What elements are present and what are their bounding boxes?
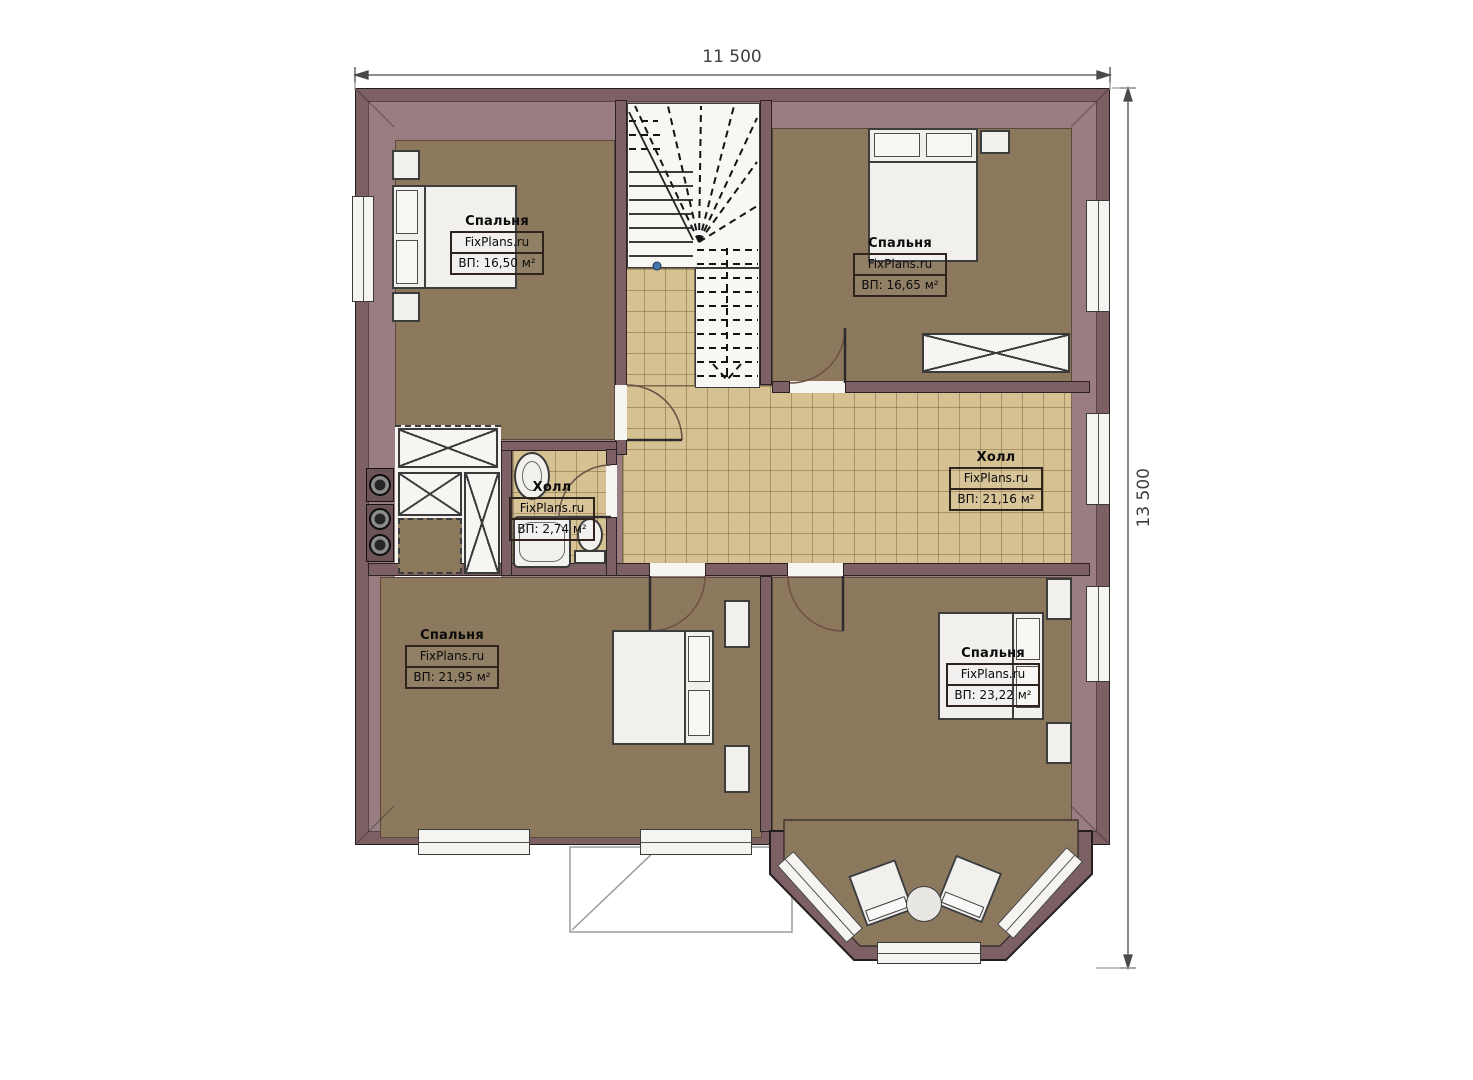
watermark-box: FixPlans.ru ВП: 16,65 м² [853,253,946,297]
bed-headboard-line [870,161,976,163]
armchair-right [936,855,1003,924]
wall-bathroom-top [501,441,617,451]
pillow [688,636,710,682]
label-bedroom-bottom-right: Спальня FixPlans.ru ВП: 23,22 м² [938,646,1048,707]
watermark-brand: FixPlans.ru [853,253,946,276]
bed-headboard-line [424,187,426,287]
watermark-brand: FixPlans.ru [949,467,1042,490]
dimension-width-label: 11 500 [682,47,782,67]
room-area: ВП: 16,65 м² [853,274,946,297]
pillow [926,133,972,157]
nightstand [724,600,750,648]
watermark-brand: FixPlans.ru [450,231,543,254]
flue-circle-2 [369,508,391,530]
wall-bedroomTR-hall-b [845,381,1090,393]
window-bottom-bedroomBL-1 [418,829,530,855]
pillow [874,133,920,157]
wardrobe-bedroomTR [922,333,1070,373]
watermark-box: FixPlans.ru ВП: 2,74 м² [509,497,595,541]
window-bay-center [877,942,981,964]
window-bay-left [777,851,863,943]
window-left-bedroomTL [352,196,374,302]
nightstand [1046,722,1072,764]
label-bedroom-top-right: Спальня FixPlans.ru ВП: 16,65 м² [845,236,955,297]
wall-bathroom-right-b [606,517,617,576]
watermark-box: FixPlans.ru ВП: 16,50 м² [450,231,543,275]
label-bedroom-top-left: Спальня FixPlans.ru ВП: 16,50 м² [442,214,552,275]
label-hall-small: Холл FixPlans.ru ВП: 2,74 м² [497,480,607,541]
room-name: Спальня [442,214,552,229]
room-area: ВП: 21,95 м² [405,666,498,689]
wall-between-bottom-bedrooms [760,576,772,832]
door-opening-bedroomBL [650,563,705,576]
label-hall: Холл FixPlans.ru ВП: 21,16 м² [941,450,1051,511]
floor-plan-canvas: 11 500 13 500 [0,0,1473,1080]
flue-circle-3 [369,534,391,556]
pillow [396,240,418,284]
window-right-bedroomBR [1086,586,1110,682]
room-name: Спальня [845,236,955,251]
room-name: Спальня [938,646,1048,661]
window-bay-right [997,847,1083,939]
flue-circle-1 [369,474,391,496]
room-name: Холл [497,480,607,495]
wardrobe-closet-small [398,472,462,516]
room-area: ВП: 21,16 м² [949,488,1042,511]
pillow [396,190,418,234]
watermark-brand: FixPlans.ru [405,645,498,668]
watermark-box: FixPlans.ru ВП: 21,16 м² [949,467,1042,511]
wall-hall-bottom-b [705,563,788,576]
nightstand [980,130,1010,154]
window-right-hall [1086,413,1110,505]
closet-floor-patch [398,518,462,574]
watermark-box: FixPlans.ru ВП: 21,95 м² [405,645,498,689]
wall-bathroom-right-a [606,449,617,465]
dimension-height-label: 13 500 [1134,468,1154,527]
door-opening-bathroom [606,465,617,517]
wardrobe-closet-tall [464,472,500,574]
label-bedroom-bottom-left: Спальня FixPlans.ru ВП: 21,95 м² [397,628,507,689]
room-area: ВП: 2,74 м² [509,518,595,541]
toilet-tank [574,550,606,564]
room-name: Холл [941,450,1051,465]
door-opening-bedroomTL [615,385,627,440]
pillow [688,690,710,736]
nightstand [392,292,420,322]
watermark-brand: FixPlans.ru [946,663,1039,686]
nightstand [392,150,420,180]
porch-roof-outline [570,847,792,932]
staircase-lower-run [695,268,760,388]
room-name: Спальня [397,628,507,643]
nightstand [724,745,750,793]
wall-bedroomTR-hall-a [772,381,790,393]
watermark-brand: FixPlans.ru [509,497,595,520]
round-table [906,886,942,922]
nightstand [1046,578,1072,620]
wardrobe-closet-wide [398,428,498,468]
door-opening-bedroomTR [790,381,845,393]
wall-stairs-bedroomTR [760,100,772,385]
door-opening-bedroomBR [788,563,843,576]
wall-hall-bottom-c [843,563,1090,576]
bed-headboard-line [684,632,686,743]
window-bottom-bedroomBL-2 [640,829,752,855]
room-area: ВП: 16,50 м² [450,252,543,275]
watermark-box: FixPlans.ru ВП: 23,22 м² [946,663,1039,707]
staircase [627,103,760,268]
window-right-bedroomTR [1086,200,1110,312]
room-area: ВП: 23,22 м² [946,684,1039,707]
hall-floor-stair-landing [622,268,695,388]
armchair-left [848,859,913,927]
